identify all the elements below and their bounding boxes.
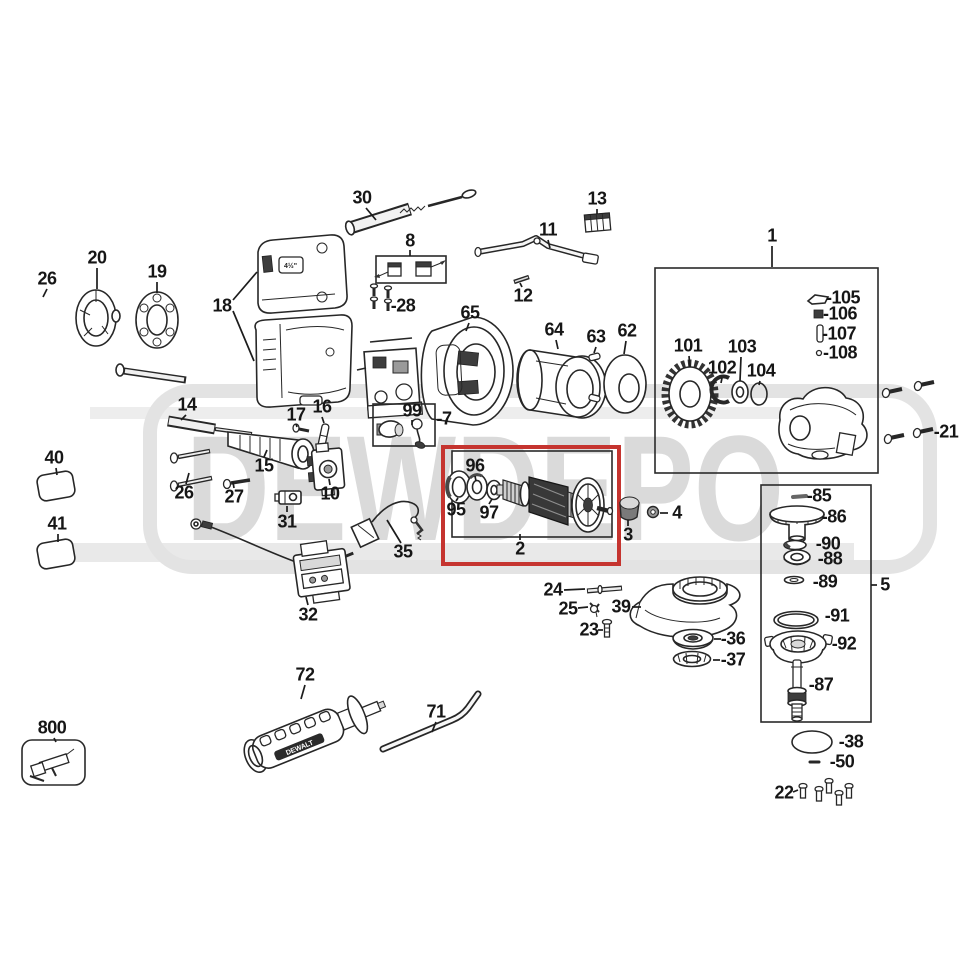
part-label-1: 1 bbox=[767, 226, 777, 247]
part-label-22: 22 bbox=[774, 783, 793, 804]
part-label-17: 17 bbox=[286, 405, 305, 426]
part-label-106: -106 bbox=[823, 304, 857, 325]
part-label-27: 27 bbox=[224, 487, 243, 508]
part-label-18: 18 bbox=[212, 296, 231, 317]
part-label-87: -87 bbox=[809, 675, 834, 696]
part-label-85: -85 bbox=[807, 486, 832, 507]
part-label-104: 104 bbox=[747, 361, 776, 382]
part-label-38: -38 bbox=[839, 732, 864, 753]
part-label-31: 31 bbox=[277, 512, 296, 533]
part-label-2: 2 bbox=[515, 539, 525, 560]
part-label-92: -92 bbox=[832, 634, 857, 655]
part-label-16: 16 bbox=[312, 397, 331, 418]
part-label-71: 71 bbox=[426, 702, 445, 723]
part-label-26a: 26 bbox=[37, 269, 56, 290]
part-label-21: -21 bbox=[934, 422, 959, 443]
part-label-32: 32 bbox=[298, 605, 317, 626]
part-label-41: 41 bbox=[47, 514, 66, 535]
part-label-28: -28 bbox=[391, 296, 416, 317]
part-label-25: 25 bbox=[558, 599, 577, 620]
part-label-8: 8 bbox=[405, 231, 415, 252]
part-label-91: -91 bbox=[825, 606, 850, 627]
part-label-30: 30 bbox=[352, 188, 371, 209]
part-label-108: -108 bbox=[823, 343, 857, 364]
part-label-63: 63 bbox=[586, 327, 605, 348]
part-label-39: 39 bbox=[611, 597, 630, 618]
part-label-72: 72 bbox=[295, 665, 314, 686]
part-label-107: -107 bbox=[822, 324, 856, 345]
part-label-800: 800 bbox=[38, 718, 67, 739]
part-label-3: 3 bbox=[623, 525, 633, 546]
part-label-95: 95 bbox=[446, 500, 465, 521]
part-labels-layer: 26201918308-2811121365646362110110210310… bbox=[0, 0, 960, 960]
part-label-88: -88 bbox=[818, 549, 843, 570]
part-label-7: -7 bbox=[436, 409, 451, 430]
part-label-5: 5 bbox=[880, 575, 890, 596]
part-label-26b: 26 bbox=[174, 483, 193, 504]
part-label-13: 13 bbox=[587, 189, 606, 210]
part-label-20: 20 bbox=[87, 248, 106, 269]
part-label-64: 64 bbox=[544, 320, 563, 341]
part-label-50: -50 bbox=[830, 752, 855, 773]
part-label-23: 23 bbox=[579, 620, 598, 641]
part-label-86: -86 bbox=[822, 507, 847, 528]
part-label-15: 15 bbox=[254, 456, 273, 477]
part-label-35: 35 bbox=[393, 542, 412, 563]
part-label-11: 11 bbox=[539, 220, 557, 241]
part-label-101: 101 bbox=[674, 336, 703, 357]
part-label-40: 40 bbox=[44, 448, 63, 469]
part-label-99: 99 bbox=[402, 401, 421, 422]
part-label-12: 12 bbox=[513, 286, 532, 307]
part-label-103: 103 bbox=[728, 337, 757, 358]
part-label-10: 10 bbox=[320, 484, 339, 505]
parts-diagram-page: { "watermark": { "text": "DEWDEPO" }, "b… bbox=[0, 0, 960, 960]
part-label-36: -36 bbox=[721, 629, 746, 650]
part-label-65: 65 bbox=[460, 303, 479, 324]
part-label-97: 97 bbox=[479, 503, 498, 524]
part-label-19: 19 bbox=[147, 262, 166, 283]
part-label-62: 62 bbox=[617, 321, 636, 342]
part-label-24: 24 bbox=[543, 580, 562, 601]
part-label-4: 4 bbox=[672, 503, 682, 524]
part-label-14: 14 bbox=[177, 395, 196, 416]
part-label-102: 102 bbox=[708, 358, 737, 379]
part-label-37: -37 bbox=[721, 650, 746, 671]
part-label-89: -89 bbox=[813, 572, 838, 593]
part-label-96: 96 bbox=[465, 456, 484, 477]
